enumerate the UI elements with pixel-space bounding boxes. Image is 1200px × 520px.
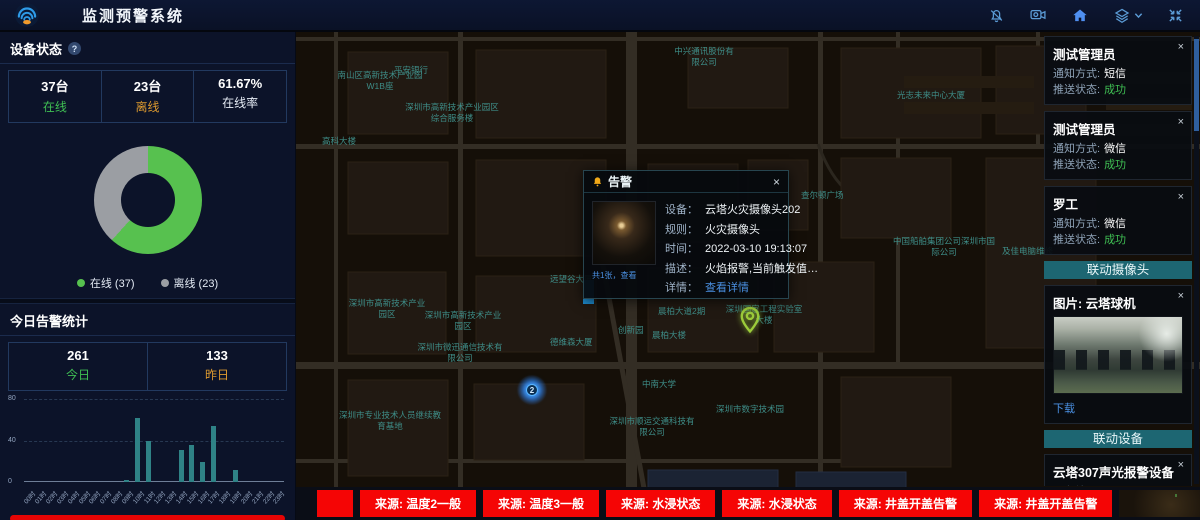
field-label: 推送状态:: [1053, 233, 1100, 249]
field-value: 成功: [1104, 83, 1126, 99]
hourly-bar-chart: 04080 00时01时02时03时04时05时06时07时08时09时10时1…: [8, 393, 287, 509]
bar-17时: [211, 426, 216, 482]
map-label: 晨柏大道2期: [658, 306, 705, 317]
bar-slot: [100, 399, 111, 482]
bar-slot: [35, 399, 46, 482]
alert-ticker: 来源: 温度2一般来源: 温度3一般来源: 水浸状态来源: 水浸状态来源: 井盖…: [296, 487, 1200, 520]
field-value: 火焰报警,当前触发值为...: [705, 260, 821, 280]
bar-slot: [230, 399, 241, 482]
right-scrollbar[interactable]: [1194, 36, 1199, 484]
map-label: 深圳市顺运交通科技有限公司: [606, 416, 698, 438]
bar-slot: [24, 399, 35, 482]
stat-online-rate: 61.67% 在线率: [193, 71, 286, 122]
close-icon[interactable]: ×: [1178, 290, 1184, 302]
hourly-bar-chart-bars: [24, 399, 284, 482]
bar-slot: [186, 399, 197, 482]
device-status-donut: [94, 146, 202, 254]
scrollbar-thumb[interactable]: [1194, 39, 1199, 131]
bar-slot: [121, 399, 132, 482]
map-label: 中国船舶集团公司深圳市国际公司: [892, 236, 996, 258]
field-value: 成功: [1104, 233, 1126, 249]
fullscreen-icon[interactable]: [1167, 7, 1184, 24]
map-label: 德维森大厦: [550, 337, 593, 348]
card-title: 测试管理员: [1053, 44, 1183, 63]
alert-popup-row: 详情：查看详情: [665, 279, 821, 299]
stat-yesterday: 133 昨日: [147, 343, 286, 390]
alarm-bell-icon: [592, 176, 603, 188]
field-value: 云塔火灾摄像头202: [705, 201, 800, 221]
alert-popup-body: 共1张，查看 设备：云塔火灾摄像头202规则：火灾摄像头时间：2022-03-1…: [584, 193, 788, 303]
notification-card: ×测试管理员通知方式:微信推送状态:成功: [1044, 111, 1192, 180]
ticker-alert-item[interactable]: 来源: 水浸状态: [606, 490, 715, 517]
field-label: 通知方式:: [1053, 67, 1100, 83]
device-cards: ×云塔307声光报警设备设备编码:ffffff100001ab6c调用服务:报警…: [1044, 454, 1192, 486]
ticker-alert-item[interactable]: 来源: 温度2一般: [360, 490, 476, 517]
location-pin-icon[interactable]: [739, 306, 761, 334]
bar-slot: [89, 399, 100, 482]
map-label: 中兴通讯股份有限公司: [672, 46, 736, 68]
ticker-items: 来源: 温度2一般来源: 温度3一般来源: 水浸状态来源: 水浸状态来源: 井盖…: [317, 490, 1112, 517]
bar-slot: [132, 399, 143, 482]
header-actions: [988, 7, 1184, 24]
close-icon[interactable]: ×: [1178, 459, 1184, 471]
device-status-title: 设备状态: [10, 39, 62, 58]
field-label: 详情：: [665, 279, 705, 299]
ticker-snapshot-dark[interactable]: [1119, 490, 1200, 517]
close-icon[interactable]: ×: [773, 175, 780, 189]
card-row: 通知方式:微信: [1053, 142, 1183, 158]
stat-online: 37台 在线: [9, 71, 101, 122]
field-label: 规则：: [665, 221, 705, 241]
card-row: 设备编码:ffffff100001ab6c: [1053, 485, 1183, 486]
unprocessed-progress-bar: [10, 515, 285, 520]
legend-online: 在线 (37): [77, 275, 135, 291]
ticker-alert-item[interactable]: 来源: 温度3一般: [483, 490, 599, 517]
card-row: 通知方式:短信: [1053, 67, 1183, 83]
y-tick-label: 0: [8, 478, 12, 485]
alert-popup-row: 描述：火焰报警,当前触发值为...: [665, 260, 821, 280]
alert-popup-header: 告警 ×: [584, 171, 788, 193]
map-label: 南山区高新技术产业园W1B座: [336, 70, 424, 92]
notification-card: ×罗工通知方式:微信推送状态:成功: [1044, 186, 1192, 255]
field-value: 火灾摄像头: [705, 221, 760, 241]
right-panel: ×测试管理员通知方式:短信推送状态:成功×测试管理员通知方式:微信推送状态:成功…: [1044, 36, 1192, 486]
alert-snapshot-caption[interactable]: 共1张，查看: [592, 270, 656, 281]
field-label: 推送状态:: [1053, 83, 1100, 99]
y-tick-label: 80: [8, 395, 16, 402]
field-value: 微信: [1104, 142, 1126, 158]
map-label: 深圳市专业技术人员继续教育基地: [336, 410, 444, 432]
camera-card-title: 图片: 云塔球机: [1053, 293, 1183, 312]
x-axis-labels: 00时01时02时03时04时05时06时07时08时09时10时11时12时1…: [24, 483, 284, 509]
bar-slot: [208, 399, 219, 482]
device-status-chart: [0, 129, 295, 271]
device-status-section-title: 设备状态 ?: [0, 32, 295, 64]
bar-15时: [189, 445, 194, 482]
ticker-alert-item-partial[interactable]: [317, 490, 353, 517]
map-label: 光志未来中心大厦: [876, 90, 986, 101]
card-title: 测试管理员: [1053, 119, 1183, 138]
left-sidebar: 设备状态 ? 37台 在线 23台 离线 61.67% 在线率 在线 (37): [0, 32, 296, 520]
stat-today: 261 今日: [9, 343, 147, 390]
bar-16时: [200, 462, 205, 482]
bar-slot: [273, 399, 284, 482]
bar-slot: [262, 399, 273, 482]
bar-10时: [135, 418, 140, 482]
field-value: 2022-03-10 19:13:07: [705, 240, 807, 260]
linked-device-header[interactable]: 联动设备: [1044, 430, 1192, 448]
page-title: 监测预警系统: [82, 5, 184, 26]
today-alarms-title: 今日告警统计: [10, 311, 88, 330]
x-tick-label: 23时: [273, 483, 284, 509]
video-camera-icon[interactable]: [1029, 7, 1047, 23]
field-label: 描述：: [665, 260, 705, 280]
alert-popup-row: 时间：2022-03-10 19:13:07: [665, 240, 821, 260]
alert-popup-row: 设备：云塔火灾摄像头202: [665, 201, 821, 221]
device-cluster-marker[interactable]: 2: [517, 375, 547, 405]
download-link[interactable]: 下载: [1053, 403, 1075, 415]
bar-slot: [165, 399, 176, 482]
card-row: 推送状态:成功: [1053, 233, 1183, 249]
help-icon[interactable]: ?: [68, 42, 81, 55]
field-value: 微信: [1104, 217, 1126, 233]
notification-bell-icon[interactable]: [988, 7, 1005, 24]
bar-19时: [233, 470, 238, 482]
bar-slot: [176, 399, 187, 482]
notification-card: ×测试管理员通知方式:短信推送状态:成功: [1044, 36, 1192, 105]
alert-popup: 告警 × 共1张，查看 设备：云塔火灾摄像头202规则：火灾摄像头时间：2022…: [583, 170, 789, 299]
chevron-down-icon: [1134, 11, 1143, 20]
field-label: 设备：: [665, 201, 705, 221]
alert-popup-rows: 设备：云塔火灾摄像头202规则：火灾摄像头时间：2022-03-10 19:13…: [665, 201, 821, 299]
alert-snapshot-image[interactable]: [592, 201, 656, 265]
today-alarms-section-title: 今日告警统计: [0, 304, 295, 336]
close-icon[interactable]: ×: [1178, 41, 1184, 53]
field-label: 通知方式:: [1053, 142, 1100, 158]
field-label: 设备编码:: [1053, 485, 1100, 486]
field-label: 推送状态:: [1053, 158, 1100, 174]
camera-card: × 图片: 云塔球机 下载: [1044, 285, 1192, 424]
map-label: 深圳市高新技术产业园区: [424, 310, 502, 332]
device-status-stats: 37台 在线 23台 离线 61.67% 在线率: [8, 70, 287, 123]
bar-slot: [143, 399, 154, 482]
bar-slot: [219, 399, 230, 482]
app-root: 监测预警系统: [0, 0, 1200, 520]
map-label: 中南大学: [642, 379, 676, 390]
map-label: 高科大楼: [322, 136, 356, 147]
field-value: ffffff100001ab6c: [1104, 485, 1182, 486]
map-label: 深圳国家工程实验室大楼: [724, 304, 804, 326]
notification-cards: ×测试管理员通知方式:短信推送状态:成功×测试管理员通知方式:微信推送状态:成功…: [1044, 36, 1192, 255]
bar-slot: [251, 399, 262, 482]
layers-icon[interactable]: [1113, 7, 1143, 24]
linked-camera-header[interactable]: 联动摄像头: [1044, 261, 1192, 279]
map-label: 查尔顿广场: [801, 190, 844, 201]
field-value: 短信: [1104, 67, 1126, 83]
bar-slot: [241, 399, 252, 482]
marker-count-badge: 2: [526, 384, 538, 396]
header: 监测预警系统: [0, 0, 1200, 32]
hourly-bar-chart-plot: [24, 399, 284, 482]
today-alarm-stats: 261 今日 133 昨日: [8, 342, 287, 391]
map-label: 深圳市微迅通信技术有限公司: [414, 342, 506, 364]
legend-offline: 离线 (23): [161, 275, 219, 291]
bar-slot: [197, 399, 208, 482]
bar-slot: [154, 399, 165, 482]
bar-slot: [56, 399, 67, 482]
ticker-alert-item[interactable]: 来源: 水浸状态: [722, 490, 831, 517]
field-value: 成功: [1104, 158, 1126, 174]
alert-popup-row: 规则：火灾摄像头: [665, 221, 821, 241]
bar-slot: [111, 399, 122, 482]
field-label: 时间：: [665, 240, 705, 260]
map-label: 晨柏大楼: [652, 330, 686, 341]
bar-11时: [146, 441, 151, 483]
view-details-link[interactable]: 查看详情: [705, 279, 749, 299]
map-label: 深圳市数字技术园: [716, 404, 784, 415]
bar-09时: [124, 480, 129, 482]
alert-popup-title: 告警: [608, 173, 632, 190]
ticker-alert-item[interactable]: 来源: 井盖开盖告警: [979, 490, 1112, 517]
alert-snapshot[interactable]: 共1张，查看: [592, 201, 656, 299]
donut-legend: 在线 (37) 离线 (23): [0, 275, 295, 291]
y-tick-label: 40: [8, 437, 16, 444]
card-title: 罗工: [1053, 194, 1183, 213]
ticker-alert-item[interactable]: 来源: 井盖开盖告警: [839, 490, 972, 517]
bar-slot: [46, 399, 57, 482]
stat-offline: 23台 离线: [101, 71, 194, 122]
card-row: 通知方式:微信: [1053, 217, 1183, 233]
close-icon[interactable]: ×: [1178, 191, 1184, 203]
card-title: 云塔307声光报警设备: [1053, 462, 1183, 481]
bar-14时: [179, 450, 184, 482]
close-icon[interactable]: ×: [1178, 116, 1184, 128]
home-icon[interactable]: [1071, 7, 1089, 24]
app-logo-icon: [14, 2, 40, 28]
card-row: 推送状态:成功: [1053, 158, 1183, 174]
field-label: 通知方式:: [1053, 217, 1100, 233]
map-label: 深圳市高新技术产业园区综合服务楼: [404, 102, 500, 124]
bar-slot: [67, 399, 78, 482]
camera-snapshot-image[interactable]: [1053, 316, 1183, 394]
linked-device-card: ×云塔307声光报警设备设备编码:ffffff100001ab6c调用服务:报警…: [1044, 454, 1192, 486]
bar-slot: [78, 399, 89, 482]
card-row: 推送状态:成功: [1053, 83, 1183, 99]
map-label: 深圳市高新技术产业园区: [348, 298, 426, 320]
map-label: 创新园: [618, 325, 644, 336]
